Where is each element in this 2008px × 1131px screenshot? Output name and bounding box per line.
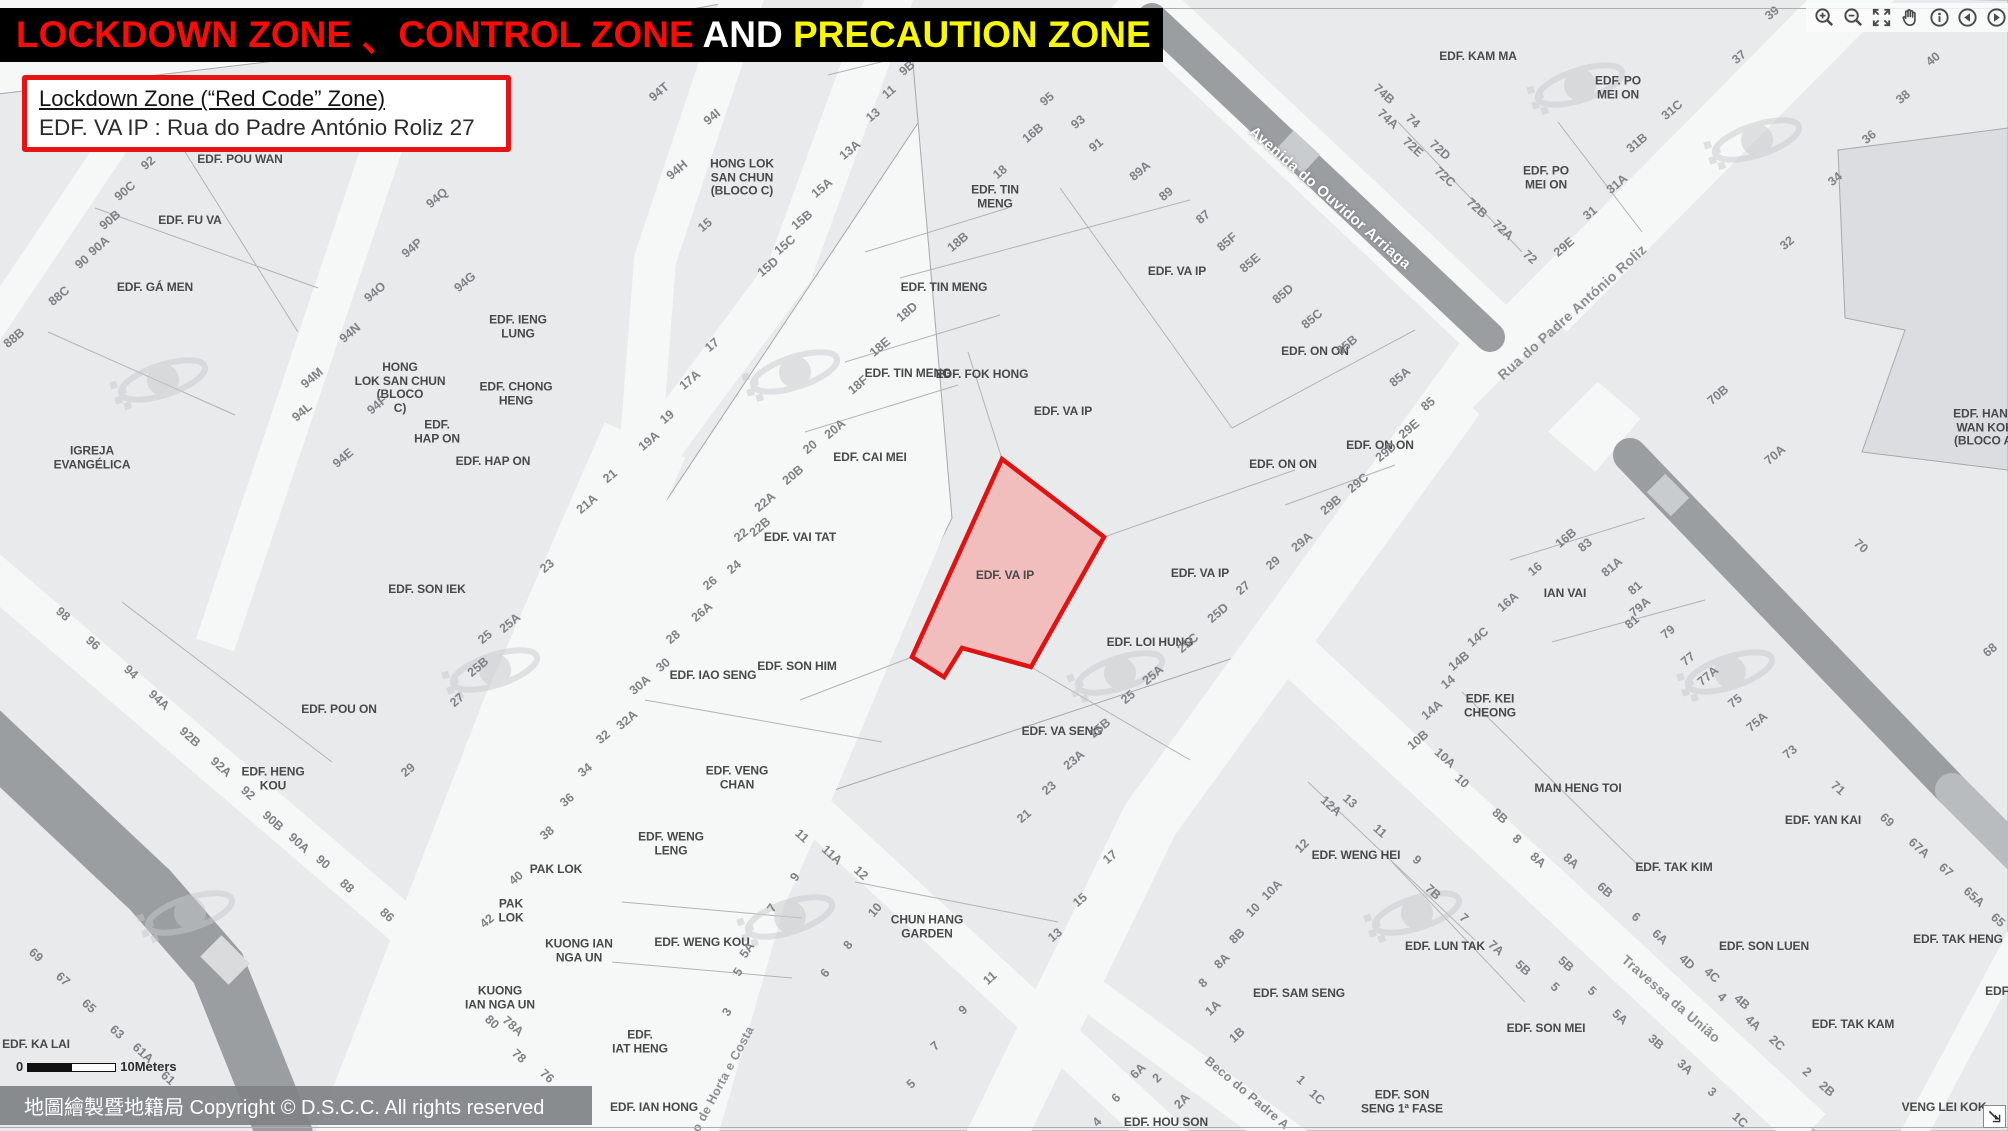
lot-number: 37 [1729, 47, 1749, 67]
lot-number: 65 [79, 996, 99, 1016]
building-label: PAK LOK [498, 897, 523, 924]
building-label: EDF. TAK HENG [1913, 933, 2003, 947]
lot-number: 21 [1014, 806, 1034, 826]
lot-number: 8A [1560, 850, 1581, 871]
lot-number: 19 [657, 407, 677, 427]
street-name-label: Beco do Padre A [1202, 1054, 1292, 1131]
lot-number: 13 [863, 105, 883, 125]
building-label: EDF. SON IEK [388, 583, 465, 597]
lot-number: 81A [1599, 554, 1626, 579]
lot-number: 5A [1609, 1006, 1630, 1027]
lot-number: 29E [1551, 234, 1577, 259]
lot-number: 78 [509, 1046, 529, 1066]
lot-number: 11 [1370, 821, 1389, 840]
identify-icon [1928, 6, 1951, 29]
lot-number: 32 [1777, 233, 1797, 253]
lot-number: 94G [451, 269, 478, 295]
lot-number: 8B [1489, 805, 1510, 826]
lot-number: 6B [1594, 879, 1615, 900]
building-label: EDF. WENG KOU [654, 936, 749, 950]
building-label: EDF. IAT HENG [612, 1028, 668, 1055]
lot-number: 1B [1226, 1024, 1247, 1045]
lot-number: 67 [1936, 860, 1956, 880]
building-label: KUONG IAN NGA UN [545, 937, 613, 964]
building-label: EDF. TAK KAM [1812, 1018, 1895, 1032]
lot-number: 23 [1039, 778, 1059, 798]
building-label: EDF. VA IP [976, 569, 1034, 583]
lot-number: 65 [1988, 910, 2008, 930]
lot-number: 7 [1457, 910, 1472, 925]
building-label: EDF. VA IP [1171, 567, 1229, 581]
banner-segment: AND [694, 14, 793, 56]
lot-number: 3 [719, 1005, 734, 1019]
building-label: EDF. WENG LENG [638, 830, 704, 857]
lot-number: 7A [1485, 937, 1506, 958]
lot-number: 40 [506, 868, 526, 888]
building-label: EDF. VA IP [1034, 405, 1092, 419]
lot-number: 8A [1211, 950, 1232, 971]
lot-number: 80 [482, 1012, 502, 1032]
lot-number: 5 [730, 965, 745, 979]
building-label: EDF. IAO SENG [670, 669, 757, 683]
lot-number: 77A [1695, 663, 1722, 688]
lot-number: 15A [809, 175, 836, 200]
lot-number: 73 [1780, 742, 1800, 762]
lot-number: 42 [477, 911, 497, 931]
lot-number: 11A [819, 842, 845, 867]
scale-zero: 0 [16, 1059, 23, 1074]
building-label: EDF. IENG LUNG [489, 313, 547, 340]
lot-number: 14C [1465, 624, 1492, 649]
lot-number: 92 [138, 153, 158, 173]
lot-number: 70A [1762, 442, 1789, 467]
building-label: EDF. VA IP [1148, 265, 1206, 279]
lot-number: 4 [1715, 989, 1730, 1004]
building-label: EDF. PO MEI ON [1523, 164, 1569, 191]
lot-number: 15 [1070, 890, 1090, 910]
building-label: EDF. KAM MA [1439, 50, 1517, 64]
building-label: EDF. TIN MENG [971, 183, 1019, 210]
lot-number: 5B [1555, 953, 1576, 974]
lot-number: 25D [1205, 600, 1232, 625]
lockdown-info-box: Lockdown Zone (“Red Code” Zone) EDF. VA … [22, 75, 511, 152]
lot-number: 91 [1086, 135, 1106, 155]
lot-number: 85F [1214, 230, 1240, 255]
building-label: EDF. SAM SENG [1253, 987, 1345, 1001]
lot-number: 72E [1400, 134, 1426, 159]
lot-number: 10A [1432, 745, 1458, 771]
building-label: MAN HENG TOI [1534, 782, 1621, 796]
lot-number: 9 [1410, 852, 1425, 867]
building-label: EDF. CAI MEI [833, 451, 906, 465]
lot-number: 72B [1464, 195, 1490, 221]
lot-number: 67A [1906, 835, 1932, 861]
lot-number: 15D [755, 254, 782, 279]
lot-number: 29C [1345, 470, 1372, 495]
lot-number: 19A [636, 428, 663, 453]
copyright-bar: 地圖繪製暨地籍局 Copyright © D.S.C.C. All rights… [0, 1086, 592, 1125]
lot-number: 24 [724, 557, 744, 577]
lot-number: 71 [1828, 778, 1848, 798]
next-extent-icon [1985, 6, 2008, 29]
lot-number: 10A [1259, 877, 1285, 903]
zoom-in-icon [1813, 6, 1836, 29]
lot-number: 6 [1109, 1091, 1124, 1106]
lot-number: 16B [1553, 525, 1580, 550]
building-label: EDF. YAN KAI [1785, 814, 1861, 828]
map-bottom-border [0, 1127, 2008, 1128]
lot-number: 36 [557, 790, 577, 810]
full-extent-button[interactable] [1870, 5, 1894, 30]
lot-number: 38 [1893, 87, 1913, 107]
zoom-in-button[interactable] [1813, 5, 1837, 30]
lot-number: 88C [46, 283, 73, 308]
lot-number: 3A [1674, 1056, 1695, 1077]
lot-number: 2B [1816, 1078, 1837, 1099]
corner-arrow-icon [1986, 1108, 2003, 1125]
pan-icon [1899, 6, 1922, 29]
building-label: EDF. VAI TAT [764, 531, 836, 545]
lot-number: 74A [1375, 106, 1401, 132]
lot-number: 31A [1604, 171, 1631, 196]
lot-number: 2C [1766, 1032, 1787, 1053]
lot-number: 14B [1446, 648, 1473, 673]
lot-number: 96 [83, 633, 103, 653]
lot-number: 90B [97, 207, 124, 232]
lot-number: 88 [337, 876, 357, 896]
lot-number: 22A [752, 489, 779, 514]
street-name-label: Avenida do Ouvidor Arriaga [1246, 123, 1415, 273]
building-label: VENG LEI KOK [1902, 1101, 1987, 1115]
lot-number: 94M [298, 365, 326, 391]
previous-extent-button[interactable] [1956, 5, 1980, 30]
lot-number: 94N [337, 320, 364, 345]
lot-number: 87 [1193, 207, 1213, 227]
lot-number: 32 [593, 727, 613, 747]
lot-number: 25 [475, 627, 495, 647]
lot-number: 9 [956, 1002, 971, 1017]
lot-number: 94T [646, 80, 672, 105]
lot-number: 65A [1961, 884, 1987, 910]
lot-number: 20A [822, 416, 849, 441]
lot-number: 15C [772, 232, 799, 257]
lot-number: 85 [1418, 394, 1438, 414]
building-label: EDF. TAK KIM [1635, 861, 1712, 875]
lot-number: 12A [1318, 793, 1344, 819]
lot-number: 29B [1318, 492, 1345, 517]
building-label: EDF. FOK HONG [936, 368, 1029, 382]
lot-number: 11 [980, 968, 999, 987]
banner-segment: 、 [361, 8, 398, 62]
building-label: EDF. POU WAN [197, 153, 282, 167]
lot-number: 15B [789, 207, 816, 232]
lot-number: 15 [695, 215, 715, 235]
building-label: EDF. POU ON [301, 703, 377, 717]
lot-number: 21 [600, 466, 620, 486]
full-extent-icon [1870, 6, 1893, 29]
lot-number: 94Q [423, 185, 450, 211]
lot-number: 31B [1624, 130, 1651, 155]
lot-number: 94I [701, 106, 723, 128]
lot-number: 92B [177, 724, 203, 750]
lot-number: 27 [447, 690, 467, 710]
lot-number: 63 [107, 1022, 127, 1042]
lot-number: 26 [700, 573, 720, 593]
lot-number: 68 [1980, 640, 2000, 660]
lot-number: 1C [1306, 1086, 1327, 1107]
lot-number: 95 [1037, 89, 1057, 109]
lot-number: 72A [1490, 217, 1516, 243]
lot-number: 13A [837, 137, 864, 162]
lot-number: 29 [1263, 553, 1283, 573]
lot-number: 11 [879, 82, 898, 101]
zoom-out-icon [1842, 6, 1865, 29]
lot-number: 90A [286, 830, 312, 856]
building-label: EDF. HANG WAN KOK (BLOCO A) [1953, 408, 2008, 449]
street-name-label: o de Horta e Costa [689, 1024, 757, 1131]
lot-number: 5 [1585, 983, 1600, 998]
lot-number: 10 [1243, 900, 1263, 920]
lot-number: 18D [894, 299, 921, 324]
lot-number: 4B [1731, 991, 1752, 1012]
lot-number: 6 [1629, 909, 1644, 924]
building-label: PAK LOK [530, 863, 582, 877]
lot-number: 8A [1527, 849, 1548, 870]
building-label: EDF. VENG CHAN [706, 764, 768, 791]
lot-number: 90B [260, 808, 286, 834]
lot-number: 2 [1800, 1064, 1815, 1079]
lot-number: 94L [289, 400, 315, 425]
lot-number: 34 [575, 760, 595, 780]
lot-number: 85C [1299, 306, 1326, 331]
lot-number: 17 [702, 335, 722, 355]
lot-number: 90 [72, 252, 92, 272]
building-label: EDF. IAN HONG [610, 1101, 698, 1115]
lot-number: 30A [627, 672, 654, 697]
lot-number: 23 [537, 556, 557, 576]
lot-number: 69 [26, 945, 46, 965]
lot-number: 23A [1061, 747, 1088, 772]
building-label: EDF. PO MEI ON [1595, 74, 1641, 101]
lot-number: 36 [1859, 127, 1879, 147]
building-label: EDF. ON ON [1249, 458, 1317, 472]
lot-number: 18 [990, 162, 1010, 182]
lot-number: 72D [1427, 137, 1453, 163]
lot-number: 75A [1744, 709, 1771, 734]
lot-number: 21A [574, 491, 601, 516]
lot-number: 16B [1020, 120, 1047, 145]
map-viewport: EDF. POU WANEDF. FU VAEDF. GÁ MENIGREJA … [0, 0, 2008, 1131]
lot-number: 92A [208, 754, 234, 780]
building-label: EDF. LUN TAK [1405, 940, 1485, 954]
lot-number: 70B [1705, 382, 1732, 407]
building-label: EDF. GÁ MEN [117, 281, 193, 295]
lot-number: 11 [792, 826, 811, 845]
lot-number: 78A [500, 1013, 526, 1039]
scale-label: 10Meters [120, 1059, 176, 1074]
lot-number: 8 [1196, 976, 1211, 991]
lot-number: 93 [1068, 112, 1088, 132]
lot-number: 31C [1659, 97, 1686, 122]
lot-number: 40 [1923, 49, 1943, 69]
lot-number: 6A [1649, 926, 1670, 947]
lot-number: 32A [614, 707, 641, 732]
lot-number: 10 [865, 900, 885, 920]
lot-number: 14 [1438, 672, 1458, 692]
lot-number: 31 [1580, 203, 1600, 223]
lot-number: 74 [1403, 111, 1423, 131]
lot-number: 18E [867, 334, 893, 359]
building-label: EDF. CHONG HENG [479, 380, 552, 407]
lot-number: 76 [537, 1066, 557, 1086]
building-label: EDF. WENG HEI [1312, 849, 1401, 863]
lot-number: 7 [764, 901, 779, 915]
scale-bar: 0 10Meters [16, 1059, 177, 1074]
lot-number: 38 [537, 823, 557, 843]
lot-number: 6 [817, 966, 832, 980]
lot-number: 5 [904, 1076, 919, 1091]
lot-number: 3 [1705, 1084, 1720, 1099]
lot-number: 5B [1512, 957, 1533, 978]
banner-segment: LOCKDOWN ZONE [16, 14, 361, 56]
lot-number: 69 [1877, 810, 1897, 830]
lot-number: 18B [945, 229, 972, 254]
lot-number: 17A [677, 367, 704, 392]
lot-number: 67 [53, 969, 73, 989]
building-label: KUONG IAN NGA UN [465, 984, 535, 1011]
lockdown-zone-title: Lockdown Zone (“Red Code” Zone) [39, 86, 494, 112]
lot-number: 9 [787, 870, 802, 884]
lot-number: 8 [1510, 831, 1525, 846]
lot-number: 86 [377, 905, 397, 925]
lot-number: 90A [86, 233, 113, 258]
building-label: EDF. SON HIM [757, 660, 836, 674]
building-label: IGREJA EVANGÉLICA [54, 444, 131, 471]
lot-number: 94O [361, 279, 388, 305]
lot-number: 14A [1419, 697, 1446, 722]
copyright-text: 地圖繪製暨地籍局 Copyright © D.S.C.C. All rights… [24, 1091, 544, 1120]
lot-number: 89 [1156, 184, 1176, 204]
lot-number: 75 [1725, 691, 1745, 711]
map-labels-layer: EDF. POU WANEDF. FU VAEDF. GÁ MENIGREJA … [0, 0, 2008, 1131]
lot-number: 79 [1658, 622, 1678, 642]
lot-number: 90 [313, 852, 333, 872]
lot-number: 7 [928, 1038, 943, 1053]
banner-segment: CONTROL ZONE [398, 14, 693, 56]
lot-number: 25A [497, 610, 524, 635]
lot-number: 94A [146, 687, 172, 713]
lot-number: 94H [664, 157, 691, 182]
lot-number: 1 [1294, 1072, 1309, 1087]
building-label: EDF. SON MEI [1507, 1022, 1586, 1036]
building-label: EDF. TIN MENG [901, 281, 988, 295]
lot-number: 26A [689, 599, 716, 624]
lockdown-zone-address: EDF. VA IP : Rua do Padre António Roliz … [39, 115, 494, 141]
lot-number: 70 [1851, 536, 1871, 556]
lot-number: 16A [1495, 589, 1522, 614]
identify-button[interactable] [1927, 5, 1951, 30]
lot-number: 28 [663, 627, 683, 647]
lot-number: 6A [1127, 1060, 1148, 1081]
lot-number: 10B [1405, 727, 1432, 752]
pan-button[interactable] [1899, 5, 1923, 30]
lot-number: 10 [1452, 771, 1472, 791]
lot-number: 4D [1676, 951, 1697, 972]
banner-segment: PRECAUTION ZONE [793, 14, 1151, 56]
lot-number: 25C [1175, 630, 1202, 655]
lot-number: 72 [1520, 247, 1540, 267]
building-label: HONG LOK SAN CHUN (BLOCO C) [710, 158, 774, 199]
lot-number: 4A [1742, 1012, 1763, 1033]
street-name-label: Rua do Padre António Roliz [1494, 241, 1649, 383]
lot-number: 13 [1045, 925, 1065, 945]
lot-number: 7B [1422, 881, 1443, 902]
building-label: EDF. KEI CHEONG [1464, 692, 1516, 719]
building-label: IAN VAI [1544, 587, 1586, 601]
lot-number: 12 [1292, 836, 1312, 856]
lot-number: 94E [330, 445, 356, 470]
lot-number: 72C [1432, 164, 1458, 190]
scale-bar-graphic [27, 1063, 116, 1072]
building-label: EDF. HAP ON [414, 418, 460, 445]
building-label: EDF. SON LUEN [1719, 940, 1809, 954]
lot-number: 34 [1825, 169, 1845, 189]
lot-number: 77 [1678, 649, 1698, 669]
overview-toggle-button[interactable] [1983, 1105, 2006, 1128]
lot-number: 94P [399, 235, 425, 260]
lot-number: 12 [851, 863, 871, 883]
lot-number: 39 [1762, 3, 1782, 23]
lot-number: 20 [800, 437, 820, 457]
lot-number: 74B [1371, 81, 1397, 107]
lot-number: 8 [840, 938, 855, 952]
title-banner: LOCKDOWN ZONE 、CONTROL ZONE AND PRECAUTI… [0, 8, 1163, 62]
lot-number: 90C [112, 178, 139, 203]
lot-number: 25A [1140, 662, 1167, 687]
lot-number: 5 [1548, 979, 1563, 994]
lot-number: 2A [1171, 1090, 1192, 1111]
lot-number: 88B [1, 325, 28, 350]
lot-number: 20B [780, 462, 807, 487]
lot-number: 85E [1237, 250, 1263, 275]
map-toolbar [1806, 3, 2008, 32]
lot-number: 98 [53, 604, 73, 624]
next-extent-button[interactable] [1984, 5, 2008, 30]
lot-number: 94 [121, 662, 141, 682]
lot-number: 29A [1289, 529, 1316, 554]
lot-number: 85D [1270, 281, 1297, 306]
lot-number: 16 [1525, 559, 1545, 579]
lot-number: 89A [1127, 158, 1154, 183]
building-label: EDF. TA [1985, 985, 2008, 999]
previous-extent-icon [1956, 6, 1979, 29]
lot-number: 25 [1118, 687, 1138, 707]
lot-number: 4C [1701, 964, 1722, 985]
building-label: CHUN HANG GARDEN [891, 913, 963, 940]
zoom-out-button[interactable] [1842, 5, 1866, 30]
lot-number: 25B [465, 654, 492, 679]
lot-number: 2 [1150, 1071, 1165, 1086]
lot-number: 17 [1100, 847, 1120, 867]
building-label: EDF. HAP ON [456, 455, 531, 469]
lot-number: 29 [398, 760, 418, 780]
lot-number: 27 [1233, 578, 1253, 598]
building-label: EDF. SON SENG 1ª FASE [1361, 1088, 1443, 1115]
lot-number: 83 [1575, 535, 1595, 555]
lot-number: 8B [1226, 925, 1247, 946]
lot-number: 3B [1645, 1031, 1666, 1052]
lot-number: 85A [1387, 364, 1414, 389]
